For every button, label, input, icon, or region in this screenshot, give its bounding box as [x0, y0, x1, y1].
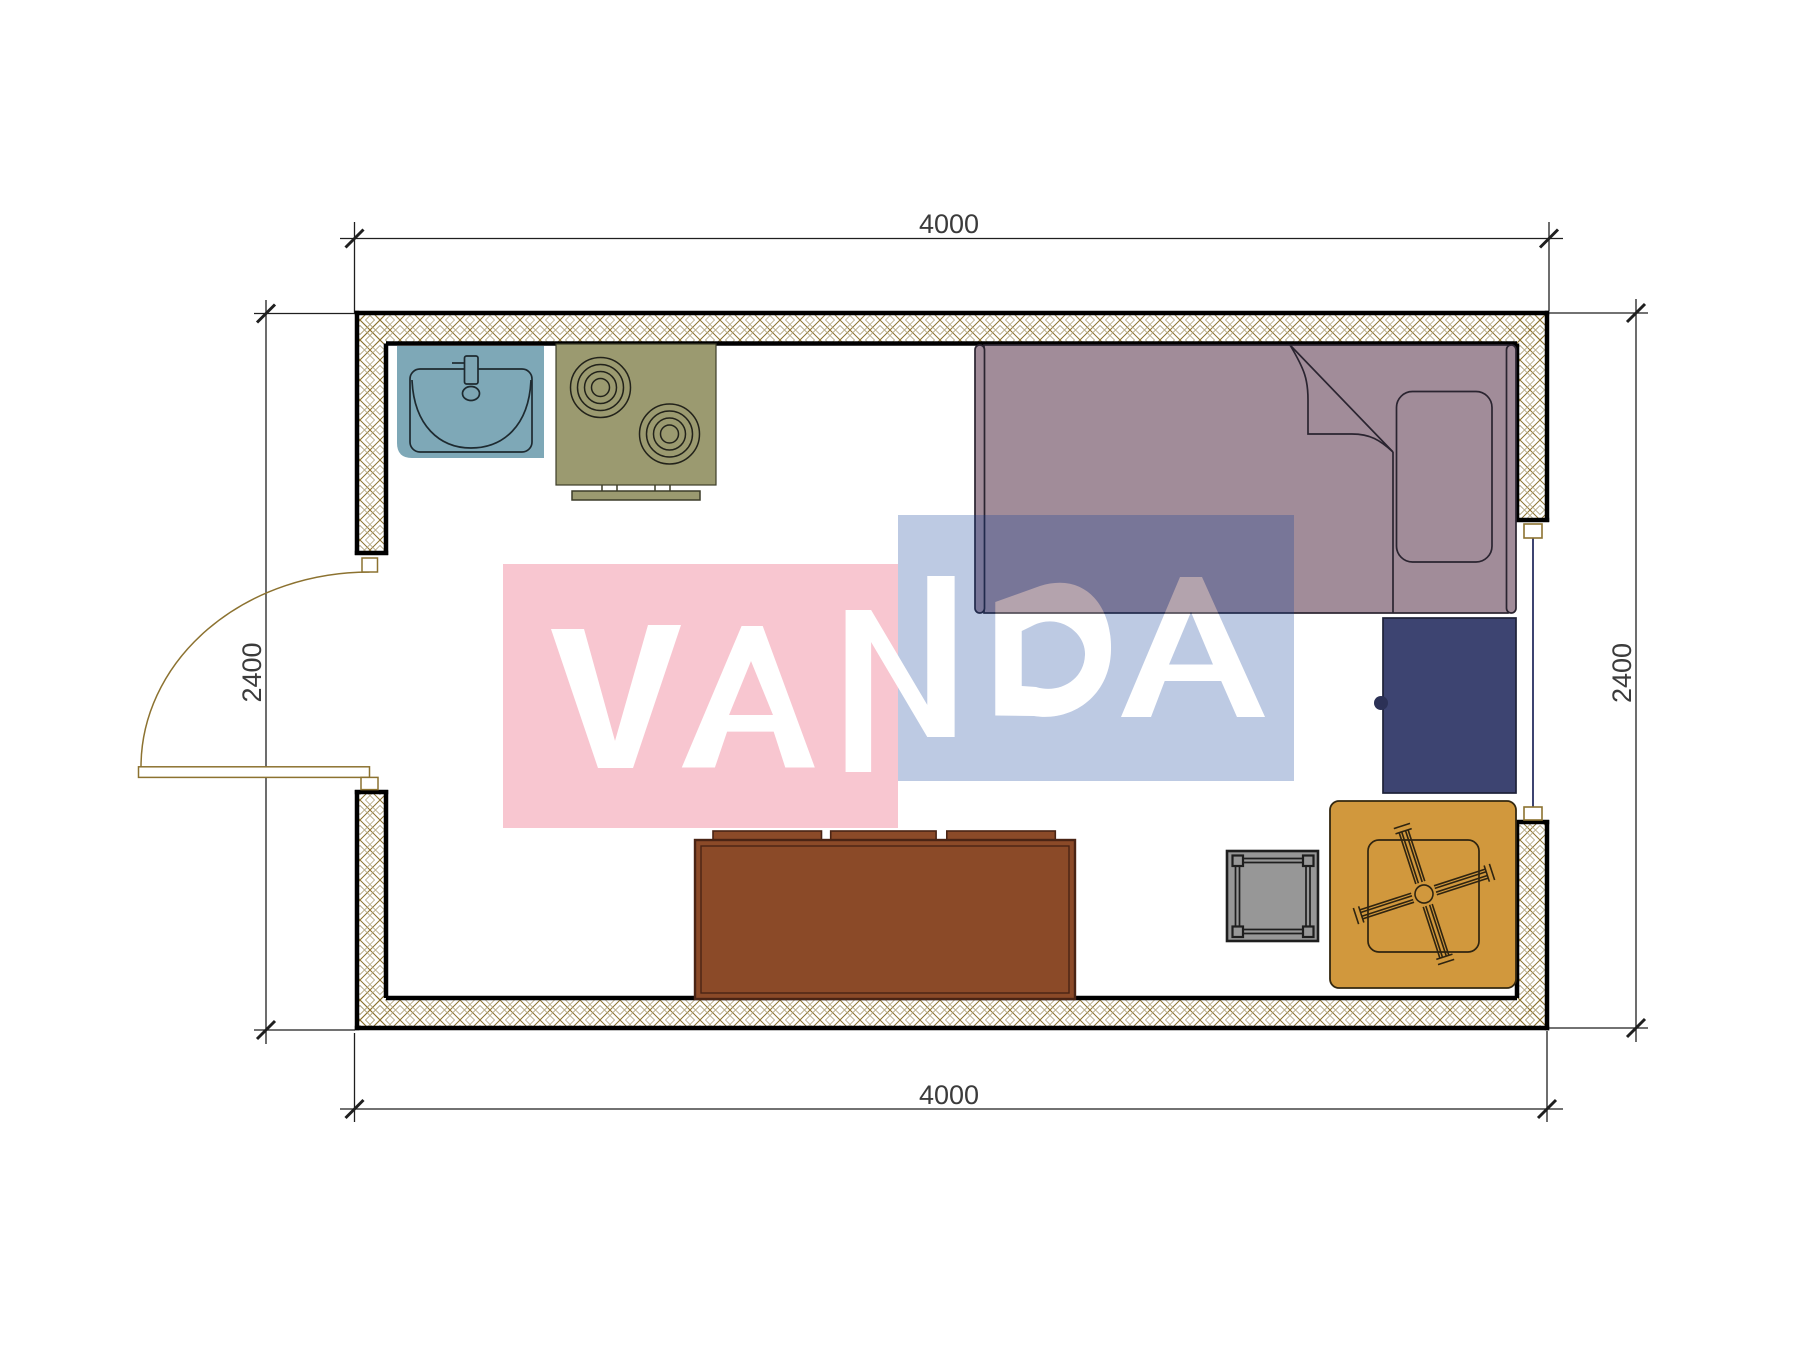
svg-text:4000: 4000	[919, 1080, 979, 1110]
svg-text:4000: 4000	[919, 209, 979, 239]
svg-text:2400: 2400	[1607, 643, 1637, 703]
svg-text:2400: 2400	[237, 642, 267, 702]
